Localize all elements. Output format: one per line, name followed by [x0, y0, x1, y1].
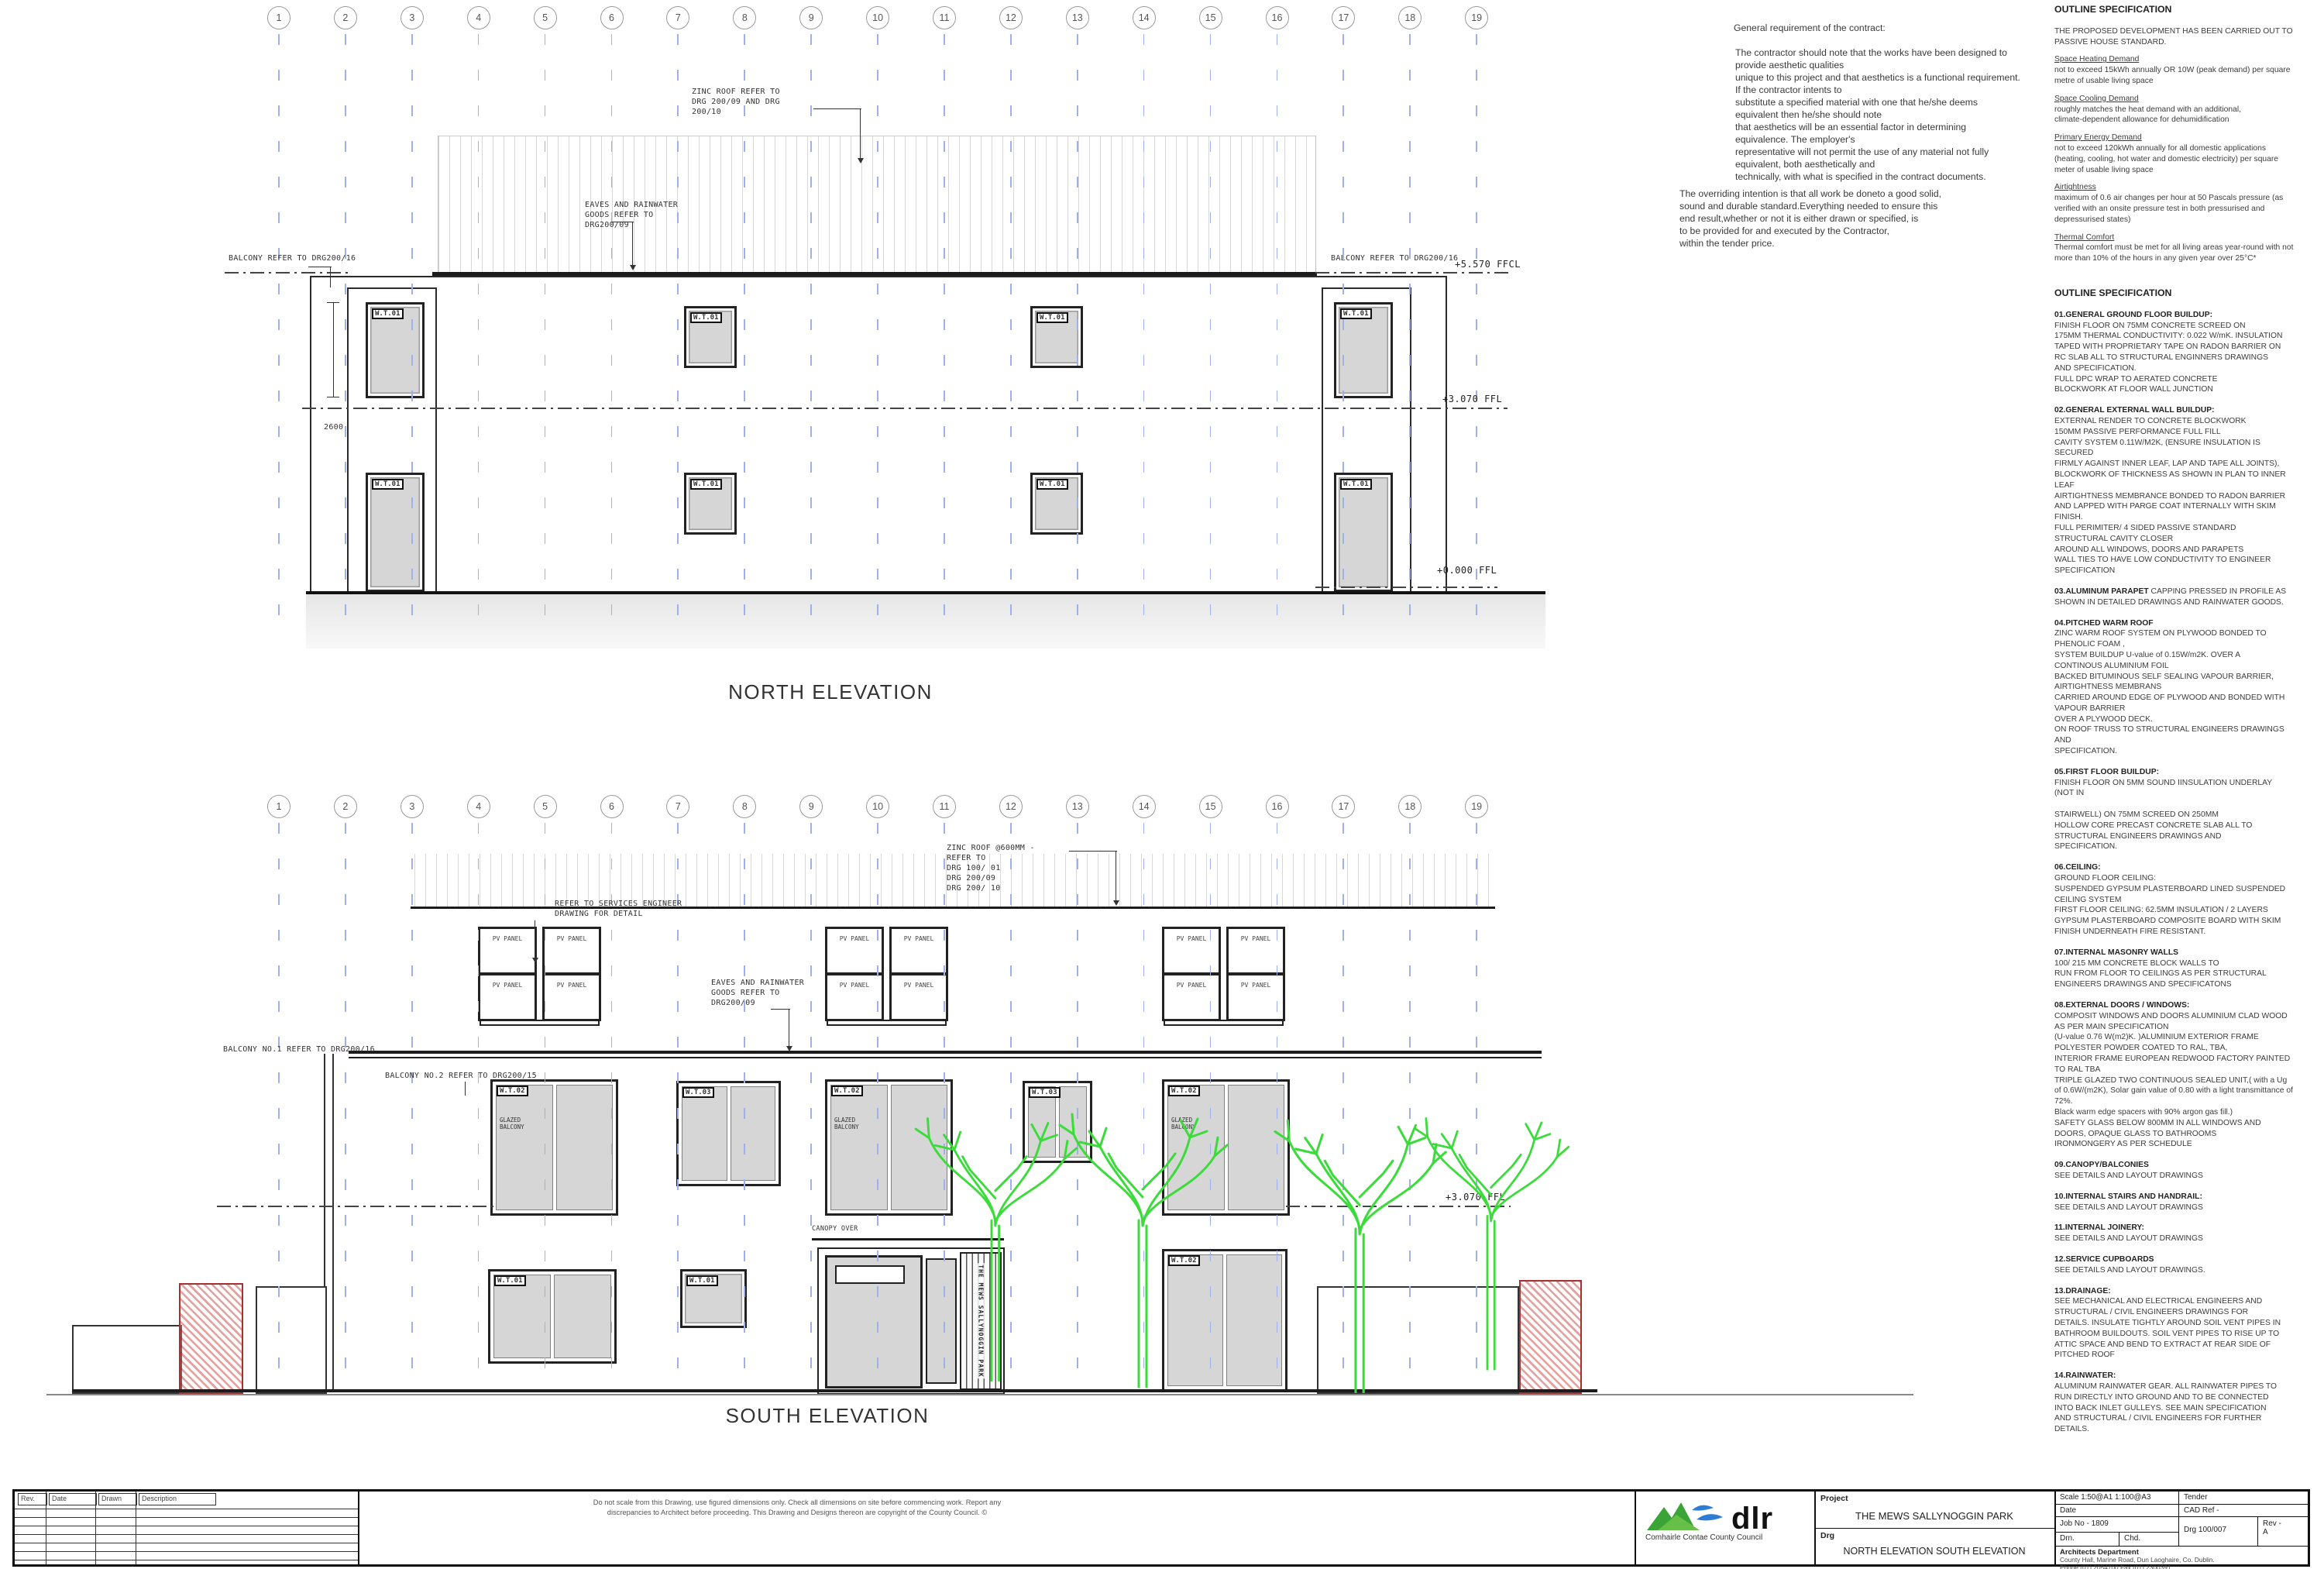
grid-column: 8 — [733, 795, 756, 818]
grid-bubble-label: 10 — [866, 795, 889, 818]
spec-item-body: not to exceed 120kWh annually for all do… — [2054, 143, 2319, 175]
cad-ref-value: CAD Ref - — [2184, 1506, 2219, 1515]
title-block: Rev. Date Drawn Description Do not scale… — [12, 1489, 2310, 1567]
grid-line — [545, 34, 546, 623]
spec-section: 03.ALUMINUM PARAPET CAPPING PRESSED IN P… — [2054, 587, 2319, 608]
grid-column: 11 — [933, 6, 956, 29]
dept-address: County Hall, Marine Road, Dun Laoghaire,… — [2060, 1557, 2215, 1569]
level-line — [302, 408, 1508, 409]
south-zinc-roof-note: ZINC ROOF @600MM - REFER TO DRG 100/ 01 … — [947, 843, 1035, 893]
grid-bubble-label: 19 — [1465, 795, 1488, 818]
spec-section-heading: 03.ALUMINUM PARAPET — [2054, 587, 2149, 596]
grid-bubble-label: 5 — [534, 795, 557, 818]
window-tag: W.T.01 — [1037, 479, 1068, 490]
grid-line — [345, 34, 346, 623]
spec-section-heading: 04.PITCHED WARM ROOF — [2054, 619, 2154, 628]
grid-bubble-label: 12 — [999, 6, 1023, 29]
grid-column: 5 — [534, 6, 557, 29]
grid-column: 4 — [467, 795, 490, 818]
rev-table-divider — [46, 1492, 46, 1564]
drg-value: NORTH ELEVATION SOUTH ELEVATION — [1814, 1546, 2054, 1557]
level-line — [217, 1206, 496, 1207]
pv-panel-label: PV PANEL — [1177, 935, 1207, 972]
grid-line — [810, 823, 812, 1393]
spec-section-body: SEE MECHANICAL AND ELECTRICAL ENGINEERS … — [2054, 1297, 2281, 1359]
leader-line — [813, 108, 861, 109]
spec-section-body: SEE DETAILS AND LAYOUT DRAWINGS — [2054, 1172, 2203, 1180]
north-window-upper-1: W.T.01 — [684, 306, 737, 368]
dlr-logo: dlr Comhairle Contae County Council — [1645, 1496, 1816, 1542]
grid-column: 10 — [866, 795, 889, 818]
window-glazing — [731, 1086, 776, 1181]
south-eaves-note: EAVES AND RAINWATER GOODS REFER TO DRG20… — [711, 978, 804, 1008]
spec-section: 09.CANOPY/BALCONIES SEE DETAILS AND LAYO… — [2054, 1160, 2319, 1182]
grid-line — [1409, 34, 1411, 623]
store-wall-left — [256, 1286, 327, 1394]
leader-line — [535, 920, 535, 959]
pv-panel-base — [827, 1020, 947, 1026]
spec-section-heading: 11.INTERNAL JOINERY: — [2054, 1223, 2144, 1232]
grid-line — [677, 34, 679, 623]
south-window-pair-1: W.T.03 — [676, 1081, 781, 1186]
window-tag: W.T.01 — [1340, 308, 1372, 319]
window-tag: W.T.01 — [372, 479, 404, 490]
grid-line — [1143, 34, 1145, 623]
pv-panel-label: PV PANEL — [1241, 982, 1271, 1019]
spec-section-body: EXTERNAL RENDER TO CONCRETE BLOCKWORK 15… — [2054, 417, 2286, 575]
grid-bubble-label: 11 — [933, 795, 956, 818]
leader-line — [1116, 851, 1116, 902]
date-label: Date — [2060, 1506, 2076, 1515]
grid-column: 17 — [1332, 6, 1355, 29]
grid-line — [411, 34, 413, 623]
window-glazing — [682, 1086, 727, 1181]
rev-col-header: Rev. — [18, 1493, 47, 1505]
glazed-balcony-left: W.T.02 GLAZED BALCONY — [490, 1079, 618, 1216]
grid-column: 4 — [467, 6, 490, 29]
grid-column: 18 — [1398, 6, 1422, 29]
pv-panel-label: PV PANEL — [840, 935, 870, 972]
grid-line — [1210, 34, 1212, 623]
revision-row — [15, 1543, 358, 1543]
grid-column: 19 — [1465, 6, 1488, 29]
pv-panel: PV PANEL — [478, 927, 537, 975]
contract-note-title: General requirement of the contract: — [1734, 22, 2053, 34]
spec-section-body: FINISH FLOOR ON 5MM SOUND IINSULATION UN… — [2054, 779, 2272, 852]
leader-line — [632, 222, 633, 267]
spec-section-heading: 01.GENERAL GROUND FLOOR BUILDUP: — [2054, 311, 2212, 319]
spec-item: Space Heating Demand not to exceed 15kWh… — [2054, 54, 2319, 86]
pv-panel: PV PANEL — [825, 973, 884, 1021]
spec-section: 08.EXTERNAL DOORS / WINDOWS: COMPOSIT WI… — [2054, 1000, 2319, 1150]
grid-bubble-label: 4 — [467, 6, 490, 29]
canopy-note: CANOPY OVER — [812, 1224, 858, 1234]
tree-graphic — [883, 1031, 1604, 1393]
pv-panel: PV PANEL — [542, 927, 601, 975]
services-engineer-note: REFER TO SERVICES ENGINEER DRAWING FOR D… — [555, 899, 682, 919]
pv-panel-label: PV PANEL — [493, 982, 523, 1019]
south-elevation-title: SOUTH ELEVATION — [665, 1404, 990, 1428]
north-balcony-note-left: BALCONY REFER TO DRG200/16 — [229, 253, 356, 263]
grid-bubble-label: 14 — [1133, 6, 1156, 29]
window-glazing — [493, 1275, 551, 1358]
spec-section: 10.INTERNAL STAIRS AND HANDRAIL: SEE DET… — [2054, 1192, 2319, 1213]
grid-bubble-label: 2 — [334, 6, 357, 29]
spec-section-body: SEE DETAILS AND LAYOUT DRAWINGS. — [2054, 1266, 2205, 1275]
grid-bubble-label: 6 — [600, 6, 624, 29]
grid-line — [1277, 34, 1278, 623]
title-block-divider — [2054, 1492, 2056, 1564]
job-no-value: Job No - 1809 — [2060, 1519, 2109, 1528]
grid-bubble-label: 16 — [1266, 795, 1289, 818]
revision-row — [15, 1517, 358, 1518]
grid-bubble-label: 6 — [600, 795, 624, 818]
window-tag: W.T.02 — [497, 1086, 528, 1096]
revision-row — [15, 1551, 358, 1552]
revision-row — [15, 1534, 358, 1535]
spec1-items: Space Heating Demand not to exceed 15kWh… — [2054, 54, 2319, 264]
grid-bubble-label: 5 — [534, 6, 557, 29]
dimension-line — [333, 302, 334, 397]
title-block-divider — [1814, 1528, 2054, 1529]
pv-panel-group: PV PANEL PV PANEL PV PANEL PV PANEL — [478, 927, 601, 1024]
spec-section-heading: 12.SERVICE CUPBOARDS — [2054, 1255, 2154, 1264]
spec-item-heading: Airtightness — [2054, 182, 2319, 193]
spec-section-body: GROUND FLOOR CEILING: SUSPENDED GYPSUM P… — [2054, 874, 2285, 936]
level-label-ff0: +0.000 FFL — [1437, 565, 1497, 576]
pv-panel-label: PV PANEL — [840, 982, 870, 1019]
grid-column: 1 — [267, 6, 290, 29]
grid-bubble-label: 2 — [334, 795, 357, 818]
spec-section: 11.INTERNAL JOINERY: SEE DETAILS AND LAY… — [2054, 1223, 2319, 1244]
leader-arrow — [786, 1046, 792, 1051]
info-table-divider — [2119, 1532, 2119, 1546]
dimension-tick — [327, 302, 339, 303]
spec-item-heading: Thermal Comfort — [2054, 232, 2319, 243]
leader-line — [308, 267, 332, 267]
grid-line — [611, 34, 613, 623]
leader-arrow — [858, 158, 864, 163]
pv-panel: PV PANEL — [889, 973, 948, 1021]
window-tag: W.T.01 — [1340, 479, 1372, 490]
leader-line — [612, 222, 634, 222]
spec-section-body: FINISH FLOOR ON 75MM CONCRETE SCREED ON … — [2054, 322, 2282, 394]
glazed-balcony-label: GLAZED BALCONY — [834, 1117, 859, 1130]
info-table-line — [2054, 1532, 2178, 1533]
spec-item-body: roughly matches the heat demand with an … — [2054, 105, 2319, 126]
grid-line — [744, 34, 745, 623]
info-table-line — [2054, 1546, 2308, 1547]
info-table-divider — [2257, 1516, 2258, 1546]
dlr-logo-icon — [1645, 1496, 1727, 1536]
leader-line — [789, 1009, 789, 1048]
grid-line — [478, 823, 480, 1393]
spec-item-body: Thermal comfort must be met for all livi… — [2054, 243, 2319, 264]
north-balcony-door-upper-left: W.T.01 — [366, 302, 425, 398]
grid-bubble-label: 9 — [799, 6, 823, 29]
grid-line — [345, 823, 346, 1393]
drg-no-value: Drg 100/007 — [2184, 1526, 2226, 1534]
spec-section-body: COMPOSIT WINDOWS AND DOORS ALUMINIUM CLA… — [2054, 1012, 2293, 1149]
description-col-header: Description — [139, 1493, 216, 1505]
spec-section-heading: 06.CEILING: — [2054, 863, 2101, 872]
info-table-line — [2054, 1516, 2308, 1517]
spec-section: 05.FIRST FLOOR BUILDUP: FINISH FLOOR ON … — [2054, 767, 2319, 852]
spec-item: Airtightness maximum of 0.6 air changes … — [2054, 182, 2319, 225]
pv-panel-label: PV PANEL — [1177, 982, 1207, 1019]
grid-column: 15 — [1199, 6, 1222, 29]
spec-title: OUTLINE SPECIFICATION — [2054, 288, 2319, 299]
south-ground-line-thin — [46, 1394, 1913, 1395]
grid-column: 3 — [401, 795, 424, 818]
grid-column: 19 — [1465, 795, 1488, 818]
grid-bubble-label: 12 — [999, 795, 1023, 818]
spec-section: 02.GENERAL EXTERNAL WALL BUILDUP: EXTERN… — [2054, 405, 2319, 576]
leader-line — [330, 267, 331, 287]
dimension-label: 2600 — [324, 422, 343, 432]
window-tag: W.T.01 — [690, 479, 722, 490]
grid-bubble-label: 4 — [467, 795, 490, 818]
grid-line — [478, 34, 480, 623]
leader-line — [860, 108, 861, 159]
project-value: THE MEWS SALLYNOGGIN PARK — [1814, 1510, 2054, 1522]
window-glazing — [554, 1275, 611, 1358]
balcony-1-note: BALCONY NO.1 REFER TO DRG200/16 — [223, 1044, 375, 1055]
rev-table-divider — [136, 1492, 136, 1564]
grid-bubble-label: 19 — [1465, 6, 1488, 29]
grid-bubble-label: 3 — [401, 6, 424, 29]
spec-section: 13.DRAINAGE: SEE MECHANICAL AND ELECTRIC… — [2054, 1286, 2319, 1361]
level-line — [1315, 272, 1509, 274]
grid-column: 2 — [334, 6, 357, 29]
window-tag: W.T.02 — [831, 1086, 863, 1096]
balcony-glazing: GLAZED BALCONY — [830, 1085, 888, 1210]
disclaimer-text: Do not scale from this Drawing, use figu… — [557, 1498, 1037, 1518]
grid-column: 7 — [666, 6, 689, 29]
balcony-2-note: BALCONY NO.2 REFER TO DRG200/15 — [385, 1071, 537, 1081]
grid-line — [411, 823, 413, 1393]
grid-bubble-label: 15 — [1199, 6, 1222, 29]
grid-line — [744, 823, 745, 1393]
grid-column: 5 — [534, 795, 557, 818]
spec-section-body: SEE DETAILS AND LAYOUT DRAWINGS — [2054, 1203, 2203, 1212]
spec2-sections: 01.GENERAL GROUND FLOOR BUILDUP: FINISH … — [2054, 310, 2319, 1435]
grid-column: 9 — [799, 795, 823, 818]
level-label-ffcl: +5.570 FFCL — [1455, 259, 1521, 270]
grid-bubble-label: 7 — [666, 6, 689, 29]
spec-section-heading: 05.FIRST FLOOR BUILDUP: — [2054, 768, 2159, 776]
leader-arrow — [630, 265, 636, 270]
spec-item: Space Cooling Demand roughly matches the… — [2054, 94, 2319, 126]
spec-section: 04.PITCHED WARM ROOF ZINC WARM ROOF SYST… — [2054, 618, 2319, 757]
grid-bubble-label: 17 — [1332, 6, 1355, 29]
pv-panel-label: PV PANEL — [904, 982, 934, 1019]
level-label-ff1: +3.070 FFL — [1442, 394, 1502, 404]
pv-panel: PV PANEL — [1162, 973, 1221, 1021]
grid-bubble-label: 13 — [1066, 6, 1089, 29]
window-tag: W.T.03 — [682, 1087, 714, 1098]
scale-value: Scale 1:50@A1 1:100@A3 — [2060, 1493, 2150, 1502]
grid-line — [1077, 34, 1078, 623]
grid-column: 7 — [666, 795, 689, 818]
spec-section-heading: 13.DRAINAGE: — [2054, 1287, 2111, 1295]
pv-panel-group: PV PANEL PV PANEL PV PANEL PV PANEL — [1162, 927, 1285, 1024]
north-balcony-note-right: BALCONY REFER TO DRG200/16 — [1331, 253, 1458, 263]
title-block-divider — [1635, 1492, 1636, 1564]
pv-panel-group: PV PANEL PV PANEL PV PANEL PV PANEL — [825, 927, 948, 1024]
spec-intro: THE PROPOSED DEVELOPMENT HAS BEEN CARRIE… — [2054, 26, 2319, 48]
spec-item-heading: Primary Energy Demand — [2054, 132, 2319, 143]
spec-section: 12.SERVICE CUPBOARDS SEE DETAILS AND LAY… — [2054, 1254, 2319, 1276]
contract-note-paragraph-2: The overriding intention is that all wor… — [1679, 188, 1999, 249]
pv-panel: PV PANEL — [825, 927, 884, 975]
pv-panel: PV PANEL — [889, 927, 948, 975]
pv-panel-label: PV PANEL — [557, 982, 587, 1019]
south-ground-window-pair-left: W.T.01 — [488, 1269, 617, 1364]
leader-arrow — [532, 958, 538, 963]
north-elevation-title: NORTH ELEVATION — [668, 680, 993, 704]
grid-column: 6 — [600, 6, 624, 29]
grid-line — [545, 823, 546, 1393]
spec-section-body: ZINC WARM ROOF SYSTEM ON PLYWOOD BONDED … — [2054, 629, 2284, 755]
leader-arrow — [1113, 900, 1119, 906]
grid-column: 16 — [1266, 795, 1289, 818]
revision-row — [15, 1509, 358, 1509]
grid-column: 9 — [799, 6, 823, 29]
north-window-lower-2: W.T.01 — [1030, 473, 1083, 535]
drg-label: Drg — [1820, 1531, 1834, 1540]
pv-panel-label: PV PANEL — [1241, 935, 1271, 972]
grid-line — [278, 34, 280, 623]
pv-panel-label: PV PANEL — [557, 935, 587, 972]
grid-line — [877, 34, 878, 623]
revision-table: Rev. Date Drawn Description — [15, 1492, 359, 1564]
spec-section: 07.INTERNAL MASONRY WALLS 100/ 215 MM CO… — [2054, 948, 2319, 990]
north-window-lower-1: W.T.01 — [684, 473, 737, 535]
grid-line — [1342, 34, 1344, 623]
spec-section: 14.RAINWATER: ALUMINUM RAINWATER GEAR. A… — [2054, 1371, 2319, 1435]
grid-line — [1010, 34, 1012, 623]
window-tag: W.T.01 — [686, 1275, 718, 1286]
outline-spec-passive: OUTLINE SPECIFICATION THE PROPOSED DEVEL… — [2054, 5, 2319, 264]
outline-spec-buildups: OUTLINE SPECIFICATION 01.GENERAL GROUND … — [2054, 288, 2319, 1435]
spec-item-body: not to exceed 15kWh annually OR 10W (pea… — [2054, 65, 2319, 87]
rev-value: Rev - A — [2263, 1519, 2281, 1536]
grid-column: 13 — [1066, 795, 1089, 818]
grid-column: 2 — [334, 795, 357, 818]
north-door-lower-left: W.T.01 — [366, 473, 425, 592]
spec-item-body: maximum of 0.6 air changes per hour at 5… — [2054, 193, 2319, 225]
glazed-balcony-label: GLAZED BALCONY — [500, 1117, 524, 1130]
spec-item: Thermal Comfort Thermal comfort must be … — [2054, 232, 2319, 264]
grid-column: 13 — [1066, 6, 1089, 29]
grid-column: 14 — [1133, 795, 1156, 818]
spec-section: 06.CEILING: GROUND FLOOR CEILING: SUSPEN… — [2054, 862, 2319, 938]
spec-item-heading: Space Heating Demand — [2054, 54, 2319, 65]
spec-section-heading: 07.INTERNAL MASONRY WALLS — [2054, 948, 2178, 957]
rev-table-divider — [95, 1492, 96, 1564]
spec-item-heading: Space Cooling Demand — [2054, 94, 2319, 105]
grid-bubble-label: 18 — [1398, 795, 1422, 818]
spec-section: 01.GENERAL GROUND FLOOR BUILDUP: FINISH … — [2054, 310, 2319, 395]
spec-section-body: ALUMINUM RAINWATER GEAR. ALL RAINWATER P… — [2054, 1382, 2277, 1433]
grid-column: 3 — [401, 6, 424, 29]
spec-title: OUTLINE SPECIFICATION — [2054, 5, 2319, 15]
grid-bubble-label: 13 — [1066, 795, 1089, 818]
grid-column: 1 — [267, 795, 290, 818]
grid-bubble-label: 15 — [1199, 795, 1222, 818]
grid-bubble-label: 8 — [733, 6, 756, 29]
grid-line — [810, 34, 812, 623]
north-window-upper-2: W.T.01 — [1030, 306, 1083, 368]
grid-column: 15 — [1199, 795, 1222, 818]
spec-section-heading: 14.RAINWATER: — [2054, 1371, 2116, 1380]
revision-row — [15, 1526, 358, 1526]
grid-bubble-label: 14 — [1133, 795, 1156, 818]
grid-line — [944, 34, 945, 623]
spec-section-heading: 09.CANOPY/BALCONIES — [2054, 1161, 2149, 1169]
grid-column: 8 — [733, 6, 756, 29]
spec-section-heading: 08.EXTERNAL DOORS / WINDOWS: — [2054, 1001, 2189, 1010]
window-tag: W.T.01 — [1037, 312, 1068, 323]
spec-section-body: 100/ 215 MM CONCRETE BLOCK WALLS TO RUN … — [2054, 959, 2267, 989]
drn-label: Drn. — [2060, 1534, 2075, 1543]
grid-column: 10 — [866, 6, 889, 29]
grid-bubble-label: 8 — [733, 795, 756, 818]
grid-bubble-label: 1 — [267, 795, 290, 818]
grid-bubble-label: 18 — [1398, 6, 1422, 29]
dlr-logo-tagline: Comhairle Contae County Council — [1645, 1533, 1816, 1542]
pv-panel: PV PANEL — [478, 973, 537, 1021]
grid-line — [278, 823, 280, 1393]
grid-line — [877, 823, 878, 1393]
grid-column: 18 — [1398, 795, 1422, 818]
grid-column: 12 — [999, 795, 1023, 818]
window-tag: W.T.01 — [494, 1275, 526, 1286]
drawn-col-header: Drawn — [98, 1493, 137, 1505]
spec-section-body: SEE DETAILS AND LAYOUT DRAWINGS — [2054, 1234, 2203, 1243]
leader-line — [771, 1009, 790, 1010]
grid-column: 16 — [1266, 6, 1289, 29]
grid-bubble-label: 9 — [799, 795, 823, 818]
info-table-divider — [2178, 1492, 2179, 1546]
leader-line — [465, 1082, 466, 1096]
north-ground-band — [306, 591, 1545, 649]
grid-column: 14 — [1133, 6, 1156, 29]
grid-bubble-label: 3 — [401, 795, 424, 818]
grid-bubble-label: 7 — [666, 795, 689, 818]
north-zinc-roof-note: ZINC ROOF REFER TO DRG 200/09 AND DRG 20… — [692, 87, 780, 117]
pv-panel: PV PANEL — [542, 973, 601, 1021]
grid-column: 12 — [999, 6, 1023, 29]
gate-left — [179, 1283, 243, 1394]
spec-section-heading: 10.INTERNAL STAIRS AND HANDRAIL: — [2054, 1192, 2202, 1201]
grid-bubble-label: 17 — [1332, 795, 1355, 818]
chd-label: Chd. — [2124, 1534, 2140, 1543]
spec-section-heading: 02.GENERAL EXTERNAL WALL BUILDUP: — [2054, 406, 2215, 415]
grid-column: 11 — [933, 795, 956, 818]
pv-panel-base — [1164, 1020, 1284, 1026]
window-tag: W.T.01 — [372, 308, 404, 319]
pv-panel-label: PV PANEL — [493, 935, 523, 972]
status-value: Tender — [2184, 1493, 2208, 1502]
pv-panel: PV PANEL — [1162, 927, 1221, 975]
grid-line — [1476, 34, 1477, 623]
garden-wall-far-left — [72, 1325, 182, 1394]
south-ground-window-small: W.T.01 — [680, 1269, 747, 1328]
grid-bubble-label: 1 — [267, 6, 290, 29]
revision-row — [15, 1560, 358, 1560]
